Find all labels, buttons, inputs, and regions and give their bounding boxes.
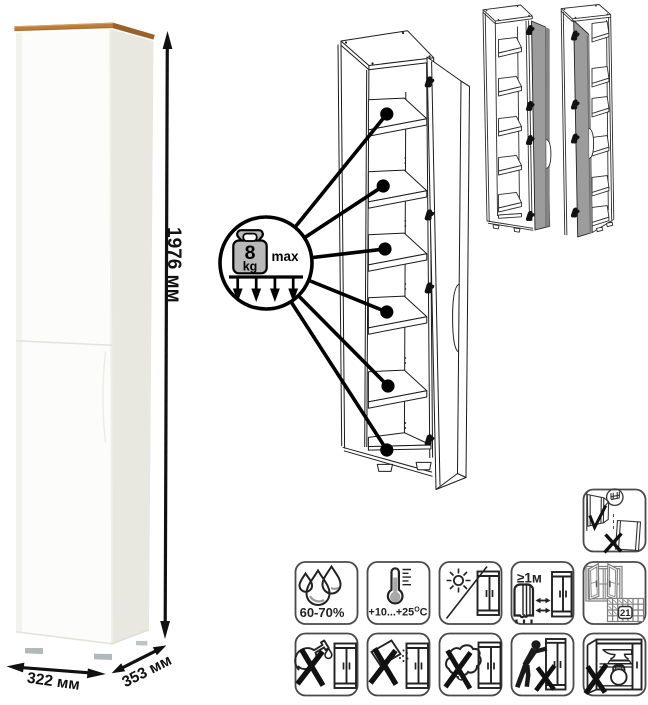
svg-text:≥1м: ≥1м [517,571,542,586]
svg-text:1976 мм: 1976 мм [163,227,184,303]
svg-text:+10...+25OC: +10...+25OC [369,607,428,619]
svg-text:322 мм: 322 мм [26,670,81,694]
svg-text:21: 21 [620,608,631,619]
svg-text:60-70%: 60-70% [300,605,345,620]
svg-text:353 мм: 353 мм [119,652,174,691]
svg-text:kg: kg [243,260,258,274]
svg-text:max: max [272,249,300,264]
